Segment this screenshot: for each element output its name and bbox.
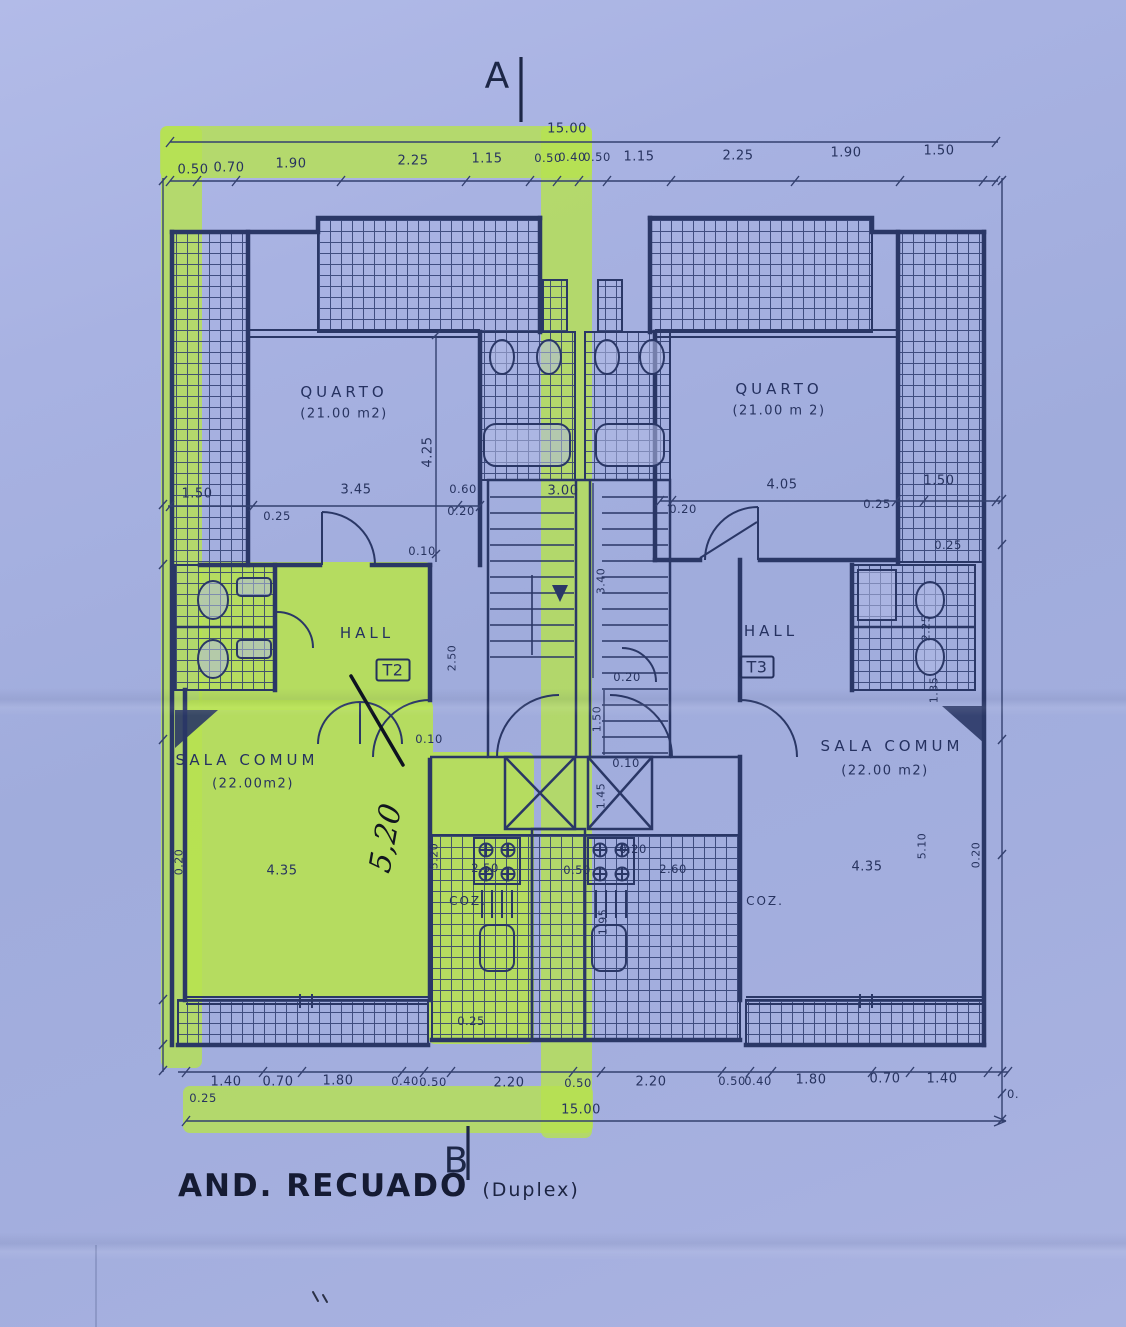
dim-label: 1.40	[927, 1072, 958, 1087]
area-label: (22.00 m2)	[841, 764, 928, 779]
floorplan-drawing	[0, 0, 1126, 1327]
dim-label: 2.25	[398, 154, 429, 169]
dim-label: 0.50	[583, 150, 611, 164]
room-label: QUARTO	[735, 380, 822, 398]
drawing-title-main: AND. RECUADO	[178, 1168, 468, 1204]
dim-label: 4.35	[267, 864, 298, 879]
drawing-title-sub: (Duplex)	[482, 1179, 579, 1201]
dim-label: 2.25	[723, 149, 754, 164]
room-label: QUARTO	[300, 383, 387, 401]
dim-label: 0.20	[669, 502, 697, 516]
dim-label: 1.15	[624, 150, 655, 165]
dim-label: 0.20	[970, 842, 983, 869]
dim-label: 1.80	[323, 1074, 354, 1089]
dim-label: 1.95	[597, 909, 610, 936]
dim-label: 0.40	[744, 1074, 772, 1088]
area-label: (21.00 m 2)	[732, 404, 825, 419]
room-label: COZ.	[449, 894, 487, 908]
dim-label: 2.50	[471, 861, 499, 875]
dim-label: 3.45	[341, 483, 372, 498]
dim-label: 1.15	[472, 152, 503, 167]
dim-label: 0.50	[178, 163, 209, 178]
dim-label: 0.25	[934, 538, 962, 552]
area-label: (21.00 m2)	[300, 407, 387, 422]
dim-label: 0.25	[863, 497, 891, 511]
floorplan-photo: 15.000.500.701.902.251.150.500.400.501.1…	[0, 0, 1126, 1327]
dim-label: 0.25	[263, 509, 291, 523]
dim-label: 3.40	[595, 568, 608, 595]
dim-label: 1.90	[276, 157, 307, 172]
unit-badge: T2	[376, 659, 411, 682]
dim-label: 1.80	[796, 1073, 827, 1088]
room-label: HALL	[340, 624, 394, 642]
dim-label: 0.20	[173, 849, 186, 876]
area-label: (22.00m2)	[212, 777, 294, 792]
dim-label: 0.10	[415, 732, 443, 746]
dim-label: 2.60	[659, 862, 687, 876]
dim-label: 1.90	[831, 146, 862, 161]
dim-label: 0.50	[718, 1074, 746, 1088]
dim-label: 1.50	[591, 706, 604, 733]
dim-label: 0.25	[189, 1091, 217, 1105]
dim-label: 4.05	[767, 478, 798, 493]
dim-label: 0.60	[449, 482, 477, 496]
dim-label: 0.50	[564, 1076, 592, 1090]
dim-label: 1.50	[924, 474, 955, 489]
dim-label: 0.	[1007, 1087, 1019, 1101]
dim-label: 0.50	[419, 1075, 447, 1089]
dim-label: 0.20	[619, 842, 647, 856]
unit-badge: T3	[740, 656, 775, 679]
dim-label: 4.35	[852, 860, 883, 875]
dim-label: 0.70	[214, 161, 245, 176]
dim-label: 2.25	[920, 615, 933, 642]
dim-label: 2.20	[636, 1075, 667, 1090]
dim-label: 0.50	[563, 863, 591, 877]
drawing-title: AND. RECUADO(Duplex)	[178, 1168, 580, 1204]
dim-label: 0.70	[870, 1072, 901, 1087]
dim-label: 0.10	[612, 756, 640, 770]
dim-label: 0.20	[447, 504, 475, 518]
dim-label: 4.25	[421, 437, 436, 468]
dim-label: 0.20	[613, 670, 641, 684]
room-label: HALL	[744, 622, 798, 640]
dim-label: 0.25	[457, 1014, 485, 1028]
room-label: SALA COMUM	[176, 751, 319, 769]
dim-label: 0.70	[263, 1075, 294, 1090]
dim-label: 2.50	[446, 645, 459, 672]
dim-label: 0.40	[558, 150, 586, 164]
dim-label: 0.40	[391, 1074, 419, 1088]
dim-label: 3.00	[548, 484, 579, 499]
dim-label: 1.50	[924, 144, 955, 159]
dim-label: 5.20	[428, 843, 441, 870]
section-marker-a: A	[485, 56, 510, 97]
room-label: COZ.	[746, 894, 784, 908]
dim-label: 1.40	[211, 1075, 242, 1090]
dim-label: 2.20	[494, 1076, 525, 1091]
dim-label: 15.00	[547, 122, 587, 137]
dim-label: 1.50	[182, 487, 213, 502]
room-label: SALA COMUM	[821, 737, 964, 755]
dim-label: 0.10	[408, 544, 436, 558]
dim-label: 1.45	[595, 783, 608, 810]
dim-label: 15.00	[561, 1103, 601, 1118]
dim-label: 5.10	[916, 833, 929, 860]
dim-label: 1.35	[928, 677, 941, 704]
